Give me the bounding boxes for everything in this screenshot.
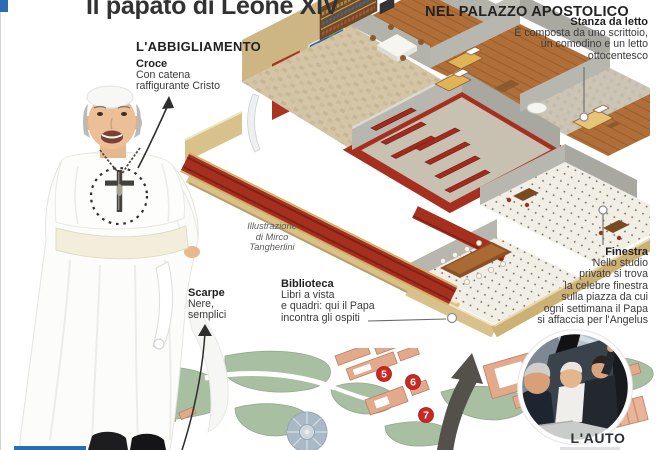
window-line: si affaccia per l'Angelus <box>498 315 648 326</box>
shoes-line: semplici <box>188 310 226 321</box>
window-leader <box>599 206 607 245</box>
shoes-annotation: Scarpe Nere, semplici <box>188 287 226 322</box>
shoes-arrow <box>182 324 212 450</box>
bedroom-leader <box>580 67 588 121</box>
bedroom-annotation: Stanza da letto È composta da uno scritt… <box>478 16 648 62</box>
library-annotation: Biblioteca Libri a vista e quadri: qui i… <box>281 278 375 324</box>
library-line: incontra gli ospiti <box>281 313 375 324</box>
clothing-annotation: L'ABBIGLIAMENTO Croce Con catena raffigu… <box>136 39 261 93</box>
infographic-page: 5 6 7 <box>0 0 656 450</box>
credit-line: di Mirco <box>232 232 312 243</box>
credit-line: Tangherlini <box>232 242 312 253</box>
clothing-heading: L'ABBIGLIAMENTO <box>136 39 261 54</box>
illustration-credit: Illustrazione di Mirco Tangherlini <box>232 221 312 253</box>
page-left-border <box>0 0 1 450</box>
window-annotation: Finestra Nello studio privato si trova l… <box>498 246 648 326</box>
page-title: Il papato di Leone XIV <box>86 0 339 21</box>
car-label: L'AUTO <box>548 430 648 446</box>
cross-arrow <box>138 96 174 168</box>
bedroom-line: ottocentesco <box>478 51 648 62</box>
cross-line: raffigurante Cristo <box>136 81 261 92</box>
annotation-overlay <box>0 0 656 450</box>
library-leader <box>368 314 457 323</box>
page-edge-blue-bottom <box>14 446 86 450</box>
window-line: sulla piazza da cui <box>498 292 648 303</box>
pectoral-cross <box>105 170 134 212</box>
credit-line: Illustrazione <box>232 221 312 232</box>
page-edge-blue-top <box>0 0 8 12</box>
